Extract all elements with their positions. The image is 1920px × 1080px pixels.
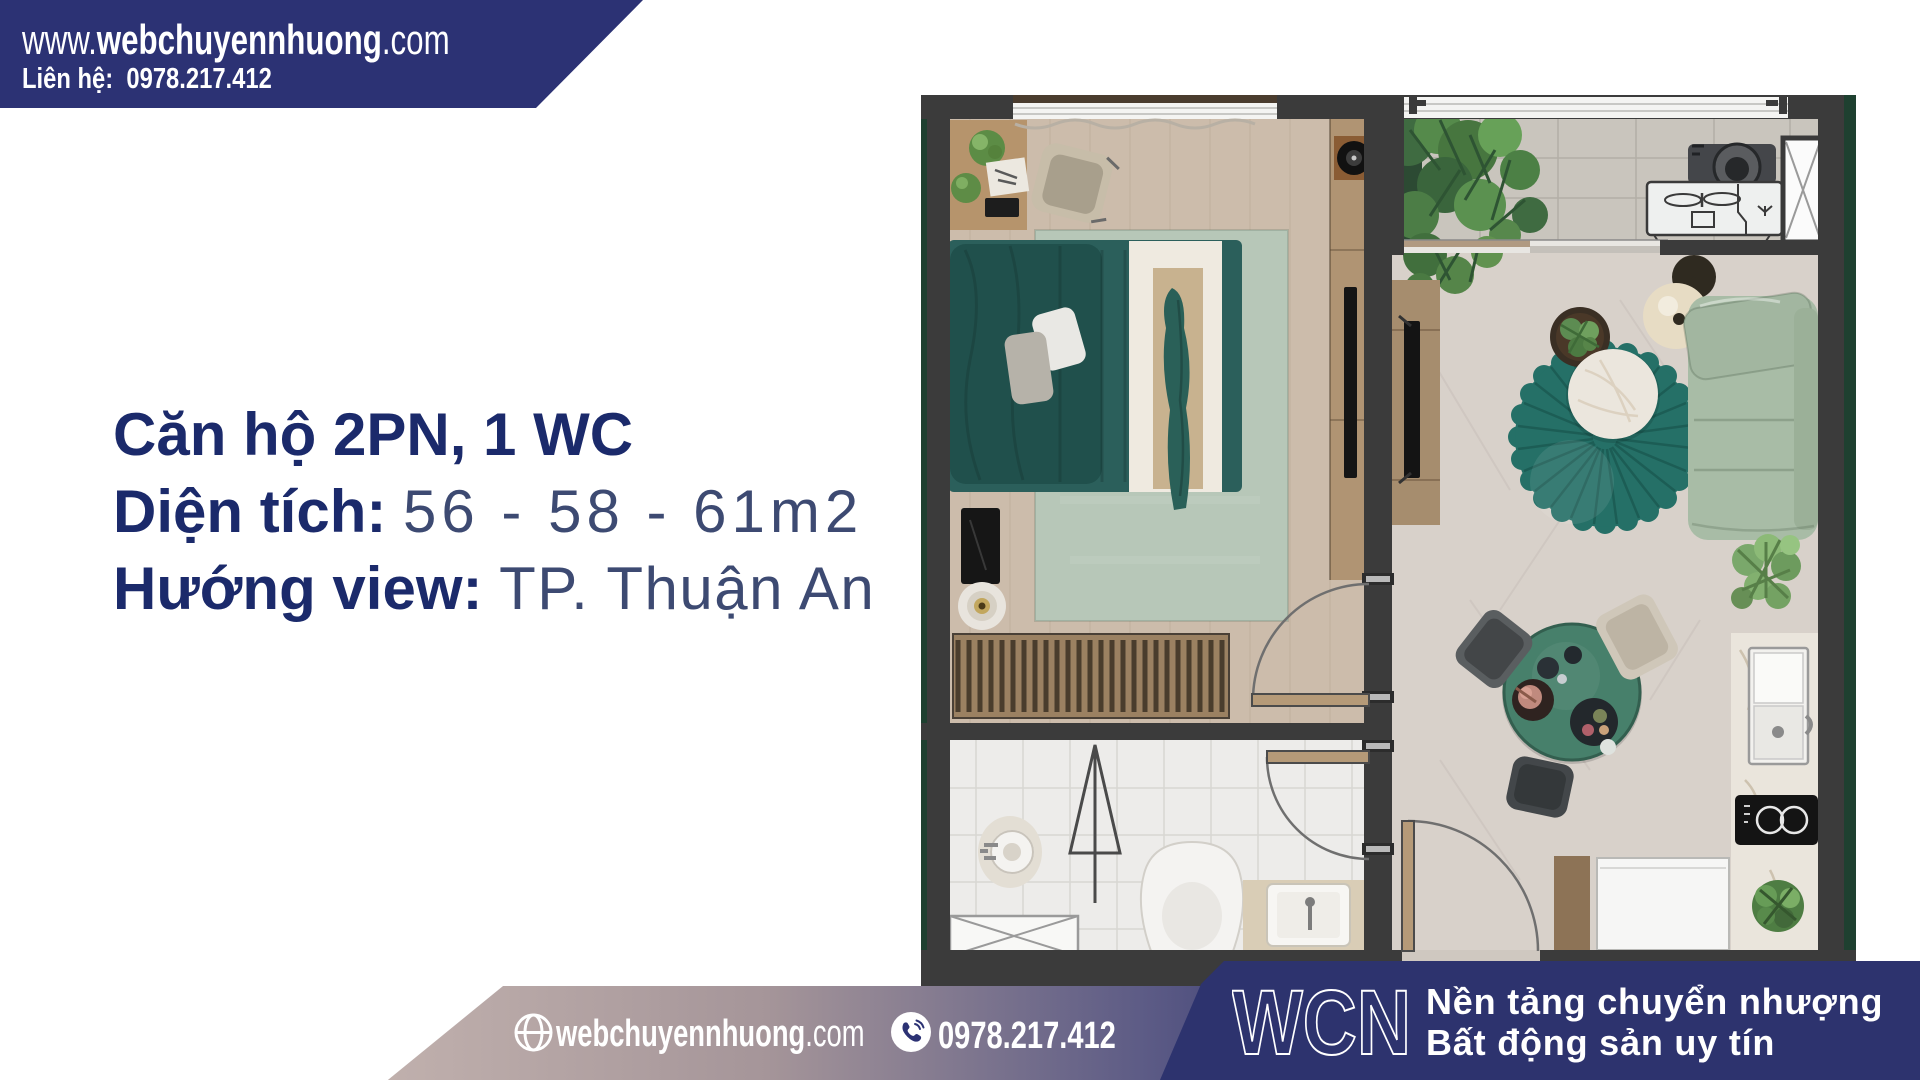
svg-text:WCN: WCN	[1232, 980, 1411, 1074]
